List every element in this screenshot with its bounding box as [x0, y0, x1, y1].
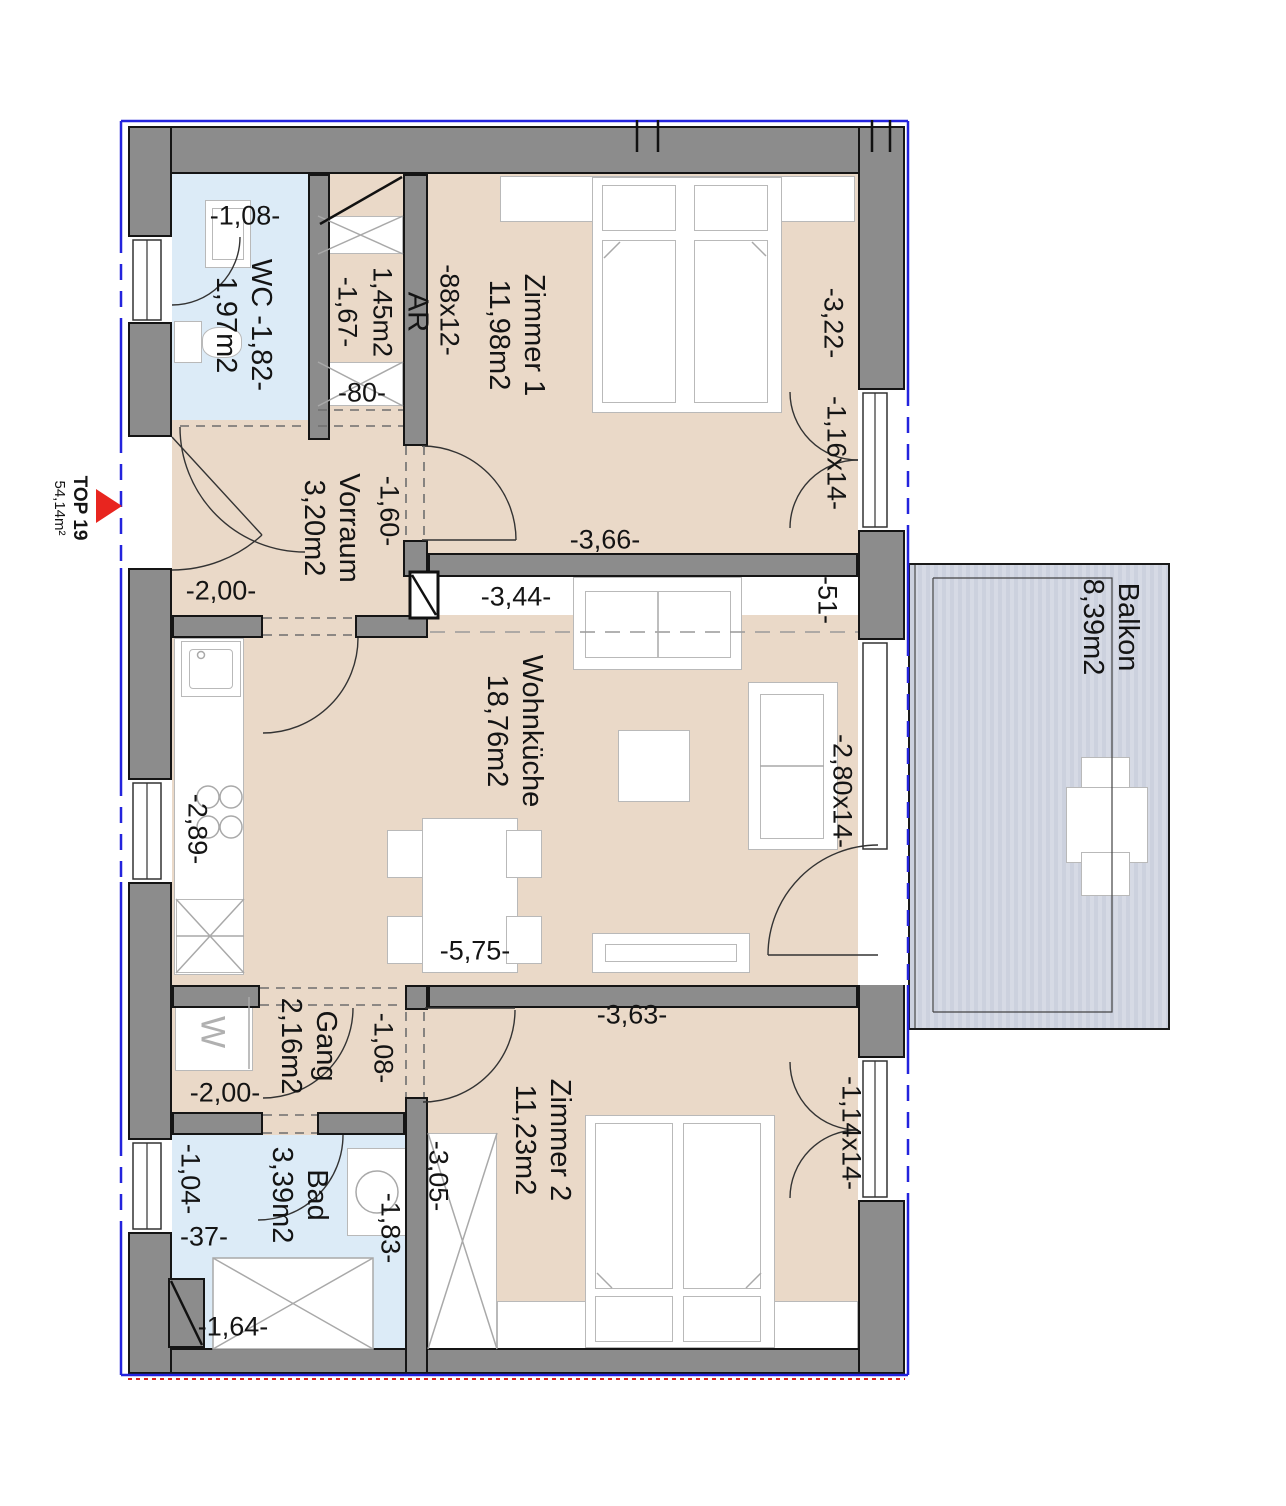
- wall-segment: [128, 126, 905, 174]
- room-area: 1,45m2: [365, 267, 400, 357]
- dim-gang-width: -2,00-: [190, 1078, 261, 1109]
- room-label-wc: WC -1,82- 1,97m2: [208, 259, 278, 391]
- wall-segment: [128, 126, 172, 237]
- wall-segment: [403, 540, 428, 577]
- room-name: AR: [400, 267, 435, 357]
- dim-wohnkueche-top: -3,44-: [481, 582, 552, 613]
- dim-gang-door: -1,08-: [366, 1013, 401, 1084]
- wall-segment: [317, 1112, 405, 1135]
- dim-kitchen-run: -2,89-: [180, 794, 215, 865]
- room-area: 3,20m2: [296, 473, 331, 583]
- dim-wc-width: -1,08-: [210, 201, 281, 232]
- wall-segment: [172, 615, 263, 638]
- dim-shower-width: -1,64-: [198, 1312, 269, 1343]
- room-area: 11,23m2: [507, 1079, 542, 1201]
- unit-area: 54,14m²: [50, 476, 68, 541]
- wall-segment: [128, 1348, 905, 1374]
- dim-vorraum-width: -1,60-: [372, 476, 407, 547]
- dim-ar-door: -80-: [338, 378, 386, 409]
- dim-wohnkueche-width: -5,75-: [440, 936, 511, 967]
- dim-zimmer1-depth: -3,22-: [816, 288, 851, 359]
- wall-segment: [405, 985, 428, 1010]
- room-name: Vorraum: [331, 473, 366, 583]
- room-name: Zimmer 2: [542, 1079, 577, 1201]
- room-name: Wohnküche: [514, 655, 549, 808]
- dim-balcony-door: -2,80x14-: [825, 734, 860, 848]
- dim-vorraum-entry: -2,00-: [186, 576, 257, 607]
- dim-zimmer2-width: -3,63-: [597, 1000, 668, 1031]
- room-area: 3,39m2: [264, 1147, 299, 1244]
- room-label-bad: Bad 3,39m2: [264, 1147, 334, 1244]
- room-name: Gang: [308, 998, 343, 1095]
- unit-marker: TOP 19 54,14m²: [50, 476, 90, 541]
- room-name: Balkon: [1110, 579, 1145, 676]
- dim-pier: -51-: [810, 576, 845, 624]
- room-area: 11,98m2: [481, 274, 516, 396]
- dim-zimmer2-window: -1,14x14-: [834, 1076, 869, 1190]
- wall-segment: [355, 615, 428, 638]
- room-label-zimmer1: Zimmer 1 11,98m2: [481, 274, 551, 396]
- dim-zimmer1-width: -3,66-: [570, 525, 641, 556]
- room-label-vorraum: Vorraum 3,20m2: [296, 473, 366, 583]
- room-name: Bad: [299, 1147, 334, 1244]
- dim-bad-window: -1,04-: [173, 1144, 208, 1215]
- dim-bad-depth: -1,83-: [373, 1193, 408, 1264]
- wall-segment: [128, 1232, 172, 1374]
- washer-label: W: [195, 1016, 230, 1048]
- wall-segment: [172, 1112, 263, 1135]
- wall-segment: [128, 882, 172, 1140]
- entrance-marker-icon: [96, 489, 122, 523]
- wall-segment: [858, 126, 905, 390]
- wall-segment: [308, 174, 330, 440]
- unit-number: TOP 19: [68, 476, 90, 541]
- room-label-gang: Gang 2,16m2: [273, 998, 343, 1095]
- wall-segment: [128, 568, 172, 780]
- wall-segment: [405, 1097, 428, 1374]
- room-area: 8,39m2: [1075, 579, 1110, 676]
- room-area: 18,76m2: [479, 655, 514, 808]
- wall-segment: [858, 1200, 905, 1374]
- room-label-wohnkueche: Wohnküche 18,76m2: [479, 655, 549, 808]
- room-name: WC -1,82-: [243, 259, 278, 391]
- dim-zimmer2-depth: -3,05-: [421, 1141, 456, 1212]
- room-label-balkon: Balkon 8,39m2: [1075, 579, 1145, 676]
- wall-segment: [858, 955, 905, 1058]
- room-dim: -1,67-: [330, 267, 365, 357]
- dim-zimmer1-door: -88x12-: [432, 264, 467, 356]
- wall-segment: [172, 985, 260, 1008]
- room-label-zimmer2: Zimmer 2 11,23m2: [507, 1079, 577, 1201]
- room-area: 2,16m2: [273, 998, 308, 1095]
- dim-zimmer1-window: -1,16x14-: [819, 396, 854, 510]
- dim-bad-nook: -37-: [180, 1222, 228, 1253]
- wall-segment: [128, 322, 172, 437]
- wall-segment: [858, 530, 905, 640]
- wall-layer: [0, 0, 1286, 1506]
- room-area: 1,97m2: [208, 259, 243, 391]
- wall-segment: [428, 553, 858, 577]
- floorplan: TOP 19 54,14m² WC -1,82- 1,97m2 AR 1,45m…: [0, 0, 1286, 1506]
- room-label-ar: AR 1,45m2 -1,67-: [330, 267, 435, 357]
- room-name: Zimmer 1: [516, 274, 551, 396]
